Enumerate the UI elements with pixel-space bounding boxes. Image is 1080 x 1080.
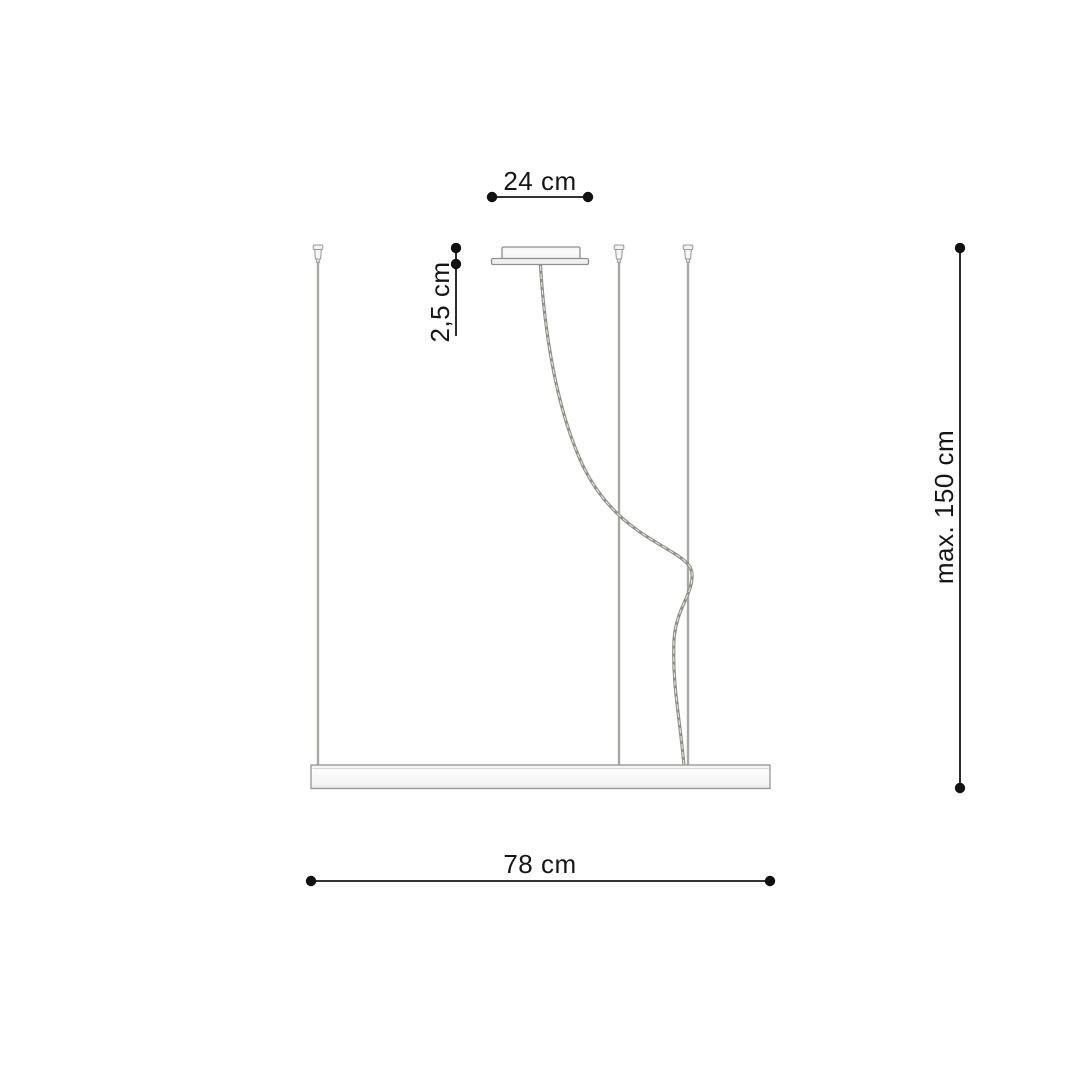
dimension-endpoint-dot <box>487 192 497 202</box>
dimension-canopy-height: 2,5 cm <box>425 243 461 343</box>
fixture-width-label: 78 cm <box>503 849 576 879</box>
lamp-drawing <box>311 245 770 789</box>
dimension-endpoint-dot <box>451 243 461 253</box>
canopy-width-label: 24 cm <box>503 166 576 196</box>
dimension-endpoint-dot <box>955 783 965 793</box>
dimension-canopy-width: 24 cm <box>487 166 593 202</box>
power-cable <box>540 258 692 766</box>
wire-ceiling-fitting-right <box>683 245 693 263</box>
wire-ceiling-fitting-middle <box>614 245 624 263</box>
pendant-lamp-dimension-drawing: 24 cm 2,5 cm max. 150 cm 78 cm <box>0 0 1080 1080</box>
lamp-bar <box>311 765 770 789</box>
dimension-endpoint-dot <box>765 876 775 886</box>
dimension-suspension-height: max. 150 cm <box>929 243 965 793</box>
ceiling-canopy <box>492 247 589 265</box>
dimension-fixture-width: 78 cm <box>306 849 775 886</box>
dimension-endpoint-dot <box>306 876 316 886</box>
canopy-height-label: 2,5 cm <box>425 261 455 342</box>
wire-ceiling-fitting-left <box>313 245 323 263</box>
dimension-endpoint-dot <box>955 243 965 253</box>
suspension-height-label: max. 150 cm <box>929 430 959 584</box>
dimension-endpoint-dot <box>583 192 593 202</box>
dimension-diagram-canvas: 24 cm 2,5 cm max. 150 cm 78 cm <box>0 0 1080 1080</box>
